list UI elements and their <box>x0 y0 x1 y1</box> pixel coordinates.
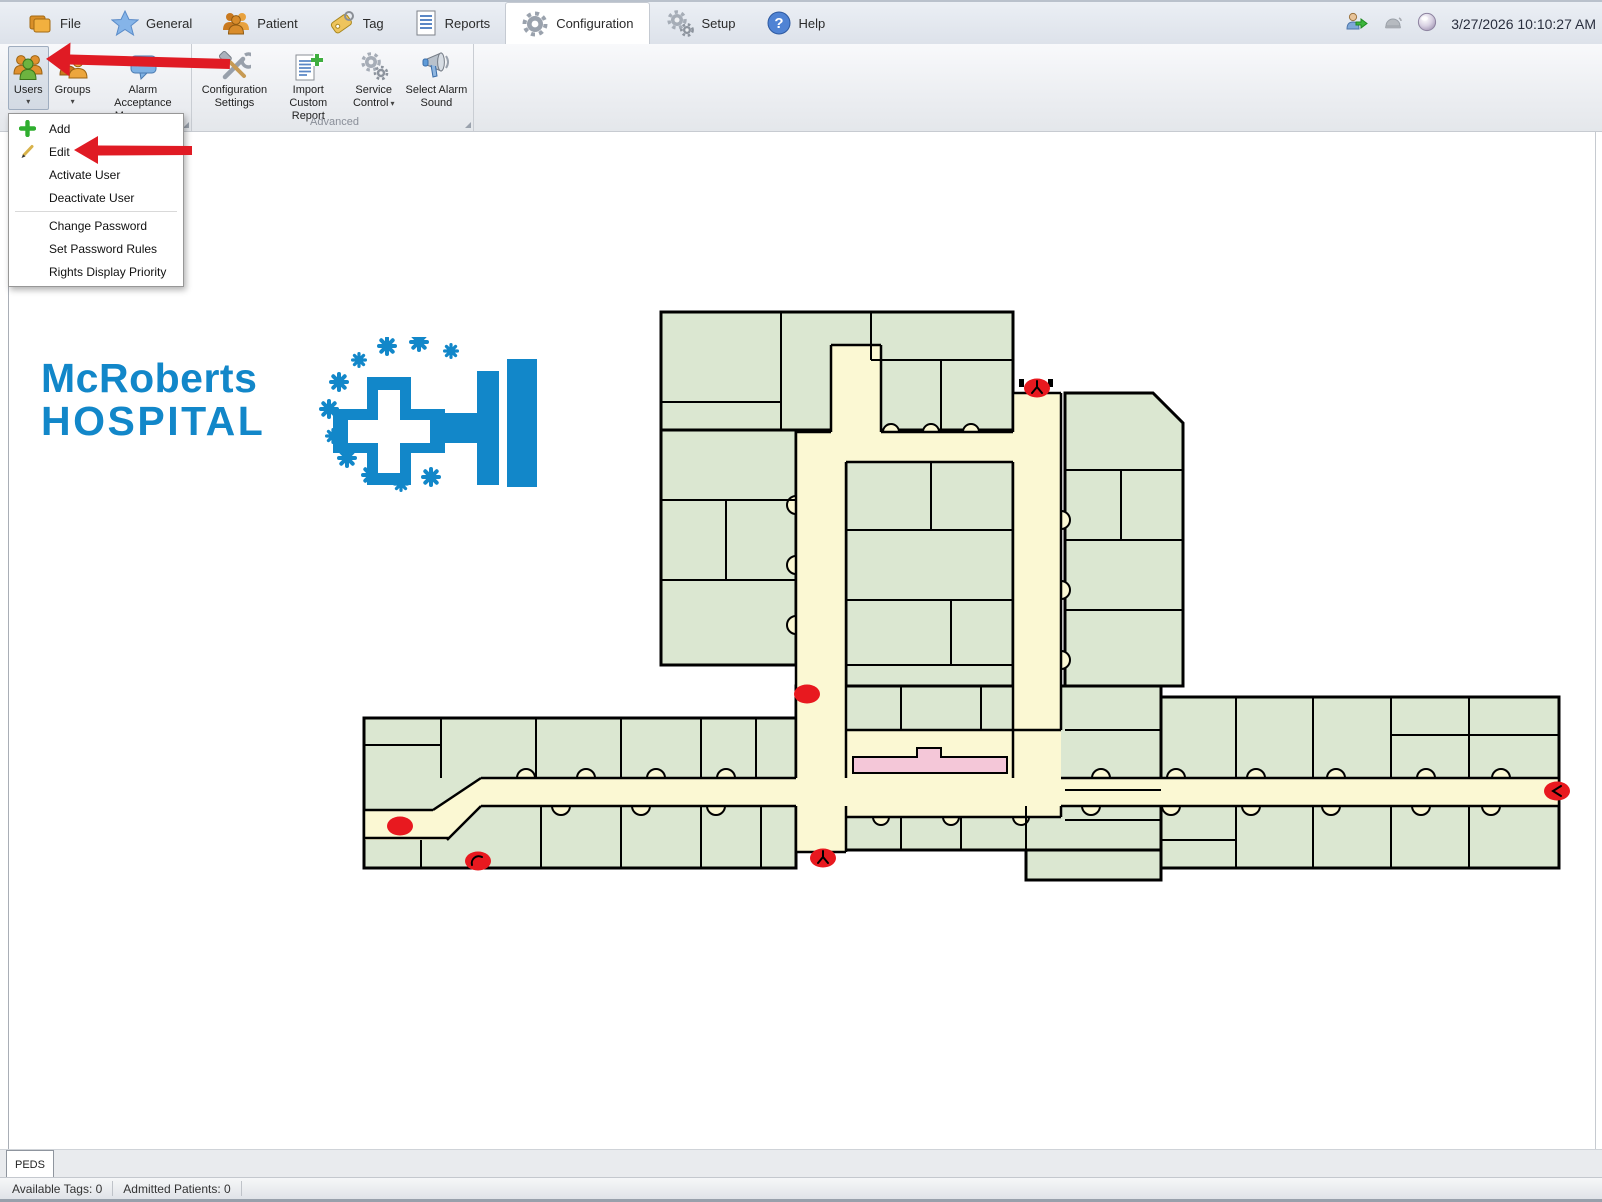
tab-patient[interactable]: Patient <box>207 2 312 44</box>
tab-label: Configuration <box>556 16 633 31</box>
menu-item-label: Add <box>49 122 70 136</box>
button-label: Groups <box>55 84 91 97</box>
group-grip <box>465 122 471 128</box>
tab-configuration[interactable]: Configuration <box>505 2 649 44</box>
menu-separator <box>15 211 177 212</box>
tab-peds[interactable]: PEDS <box>6 1150 54 1178</box>
tab-general[interactable]: General <box>96 2 207 44</box>
alert-tag-dot[interactable] <box>465 852 491 871</box>
dropdown-caret: ▾ <box>26 98 30 106</box>
available-tags-status: Available Tags: 0 <box>12 1182 102 1196</box>
alert-tag-dot[interactable] <box>794 685 820 704</box>
service-control-button[interactable]: Service Control▾ <box>346 46 402 111</box>
tab-label: Setup <box>702 16 736 31</box>
gears-icon <box>665 9 695 37</box>
tab-reports[interactable]: Reports <box>399 2 506 44</box>
ribbon-toolbar: Users ▾ Groups ▾ Alarm Acceptance Messag… <box>0 44 1602 132</box>
menu-item-label: Deactivate User <box>49 191 134 205</box>
alarm-messages-icon <box>127 50 159 84</box>
tab-setup[interactable]: Setup <box>650 2 751 44</box>
titlebar-status-area: 3/27/2026 10:10:27 AM <box>1345 2 1596 46</box>
datetime-display: 3/27/2026 10:10:27 AM <box>1451 16 1596 32</box>
user-login-icon[interactable] <box>1345 12 1369 37</box>
menu-item-edit[interactable]: Edit <box>9 140 183 163</box>
admitted-patients-status: Admitted Patients: 0 <box>123 1182 230 1196</box>
ribbon-tab-bar: File General Patient Tag Reports Configu… <box>0 0 1602 44</box>
tab-label: General <box>146 16 192 31</box>
menu-item-label: Set Password Rules <box>49 242 157 256</box>
dropdown-caret: ▾ <box>71 98 75 106</box>
report-icon <box>414 9 438 37</box>
tab-label: File <box>60 16 81 31</box>
tab-label: Patient <box>257 16 297 31</box>
select-alarm-sound-button[interactable]: Select Alarm Sound <box>402 46 471 111</box>
configuration-settings-button[interactable]: Configuration Settings <box>198 46 271 111</box>
menu-item-label: Activate User <box>49 168 120 182</box>
tab-tag[interactable]: Tag <box>313 2 399 44</box>
menu-item-label: Edit <box>49 145 70 159</box>
map-tab-label: PEDS <box>15 1159 45 1171</box>
main-content-area: McRoberts HOSPITAL <box>8 132 1596 1149</box>
tag-icon <box>328 9 356 37</box>
dropdown-caret: ▾ <box>390 99 394 108</box>
toolbar-group-advanced: Configuration Settings Import Custom Rep… <box>196 44 474 131</box>
menu-item-change-password[interactable]: Change Password <box>9 214 183 237</box>
status-separator <box>241 1181 242 1196</box>
floor-plan-map <box>9 132 1597 1149</box>
import-custom-report-button[interactable]: Import Custom Report <box>271 46 346 124</box>
menu-item-deactivate-user[interactable]: Deactivate User <box>9 186 183 209</box>
alarm-disabled-icon[interactable] <box>1383 13 1403 36</box>
import-report-icon <box>292 50 324 84</box>
button-label: Select Alarm Sound <box>405 84 468 110</box>
help-icon: ? <box>766 10 792 36</box>
config-settings-icon <box>217 50 251 84</box>
status-separator <box>112 1181 113 1196</box>
svg-text:?: ? <box>774 15 783 32</box>
menu-item-label: Rights Display Priority <box>49 265 166 279</box>
tab-label: Tag <box>363 16 384 31</box>
menu-item-rights-display-priority[interactable]: Rights Display Priority <box>9 260 183 283</box>
gear-icon <box>521 10 549 38</box>
tab-label: Help <box>799 16 826 31</box>
tab-file[interactable]: File <box>12 2 96 44</box>
status-bar: Available Tags: 0 Admitted Patients: 0 <box>0 1177 1602 1199</box>
menu-item-add[interactable]: Add <box>9 117 183 140</box>
button-label: Configuration Settings <box>201 84 268 110</box>
map-tab-bar: PEDS <box>0 1149 1602 1177</box>
group-label-advanced: Advanced <box>196 116 473 128</box>
menu-item-activate-user[interactable]: Activate User <box>9 163 183 186</box>
groups-button[interactable]: Groups ▾ <box>49 46 97 110</box>
tab-label: Reports <box>445 16 491 31</box>
alert-tag-dot[interactable] <box>387 817 413 836</box>
button-label: Service Control <box>353 84 392 109</box>
tab-help[interactable]: ? Help <box>751 2 841 44</box>
alert-tag-dot[interactable] <box>1544 782 1570 801</box>
menu-item-set-password-rules[interactable]: Set Password Rules <box>9 237 183 260</box>
button-label: Users <box>14 84 43 97</box>
edit-icon <box>19 143 36 160</box>
sphere-status-icon[interactable] <box>1417 12 1437 37</box>
application-window: File General Patient Tag Reports Configu… <box>0 0 1602 1202</box>
star-icon <box>111 9 139 37</box>
alarm-sound-icon <box>419 50 453 84</box>
add-icon <box>19 120 36 137</box>
patients-icon <box>222 10 250 36</box>
users-dropdown-menu: Add Edit Activate User Deactivate User C… <box>8 113 184 287</box>
folder-icon <box>27 10 53 36</box>
users-button[interactable]: Users ▾ <box>8 46 49 110</box>
service-gears-icon <box>358 50 390 84</box>
menu-item-label: Change Password <box>49 219 147 233</box>
groups-icon <box>57 50 89 84</box>
users-icon <box>12 50 44 84</box>
